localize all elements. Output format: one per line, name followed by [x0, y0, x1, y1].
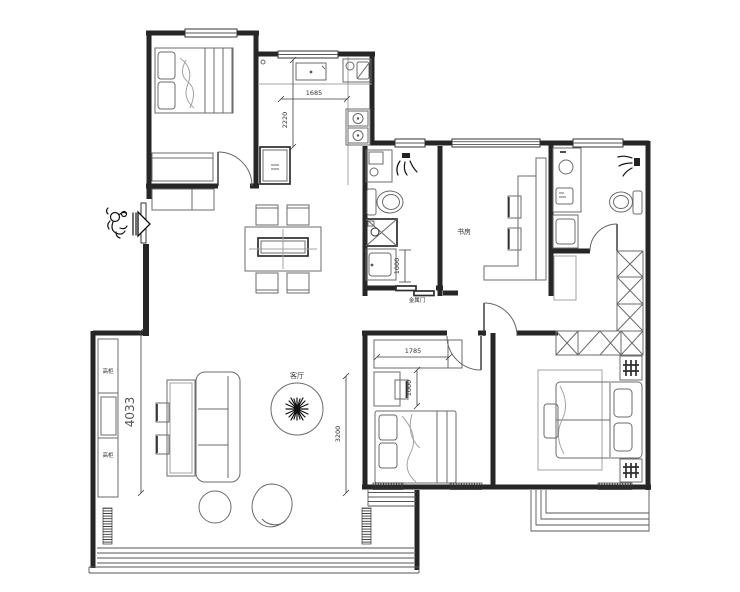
bookshelf-icon — [536, 158, 546, 280]
radiator-icon — [103, 508, 112, 544]
dim-text-kitchen-width: 1685 — [306, 89, 323, 97]
wardrobe-x-hatch — [617, 251, 643, 331]
dim-text-bedroom2-wardrobe: 1785 — [405, 347, 422, 355]
study — [484, 158, 546, 280]
radiators — [103, 483, 632, 544]
room-label-study: 书房 — [457, 227, 471, 236]
room-label-living: 客厅 — [290, 371, 304, 380]
corner-dot — [261, 60, 265, 64]
small-desk-icon — [374, 372, 400, 406]
toilet-icon — [610, 191, 643, 214]
bath1-vanity-icon — [366, 249, 396, 280]
dim-text-living-width: 3200 — [334, 426, 342, 443]
bench-icon — [152, 153, 213, 181]
dim-kitchen-width: 1685 — [278, 89, 350, 102]
bedroom1-door — [218, 152, 252, 186]
dim-text-bedroom2-desk: 1000 — [405, 380, 413, 397]
bedroom2-bay-window — [368, 490, 416, 506]
windows — [185, 29, 623, 147]
study-window — [452, 139, 540, 147]
entry-figure-icon — [107, 208, 128, 238]
entry — [107, 203, 151, 243]
dining-table-icon — [245, 227, 321, 271]
lounge-chair-detail — [262, 519, 286, 525]
bed-icon — [155, 48, 233, 113]
closet-column — [617, 251, 643, 331]
master-door — [484, 303, 517, 336]
sofa-icon — [196, 372, 240, 482]
dining-area — [245, 205, 321, 293]
master-bedroom — [538, 356, 642, 482]
bath1-sliding-door — [396, 286, 434, 296]
dim-text-kitchen-depth: 2220 — [281, 112, 289, 129]
dim-text-living-length: 4033 — [123, 397, 137, 428]
dim-bedroom2-wardrobe: 1785 — [374, 347, 452, 360]
kitchen-window — [278, 51, 338, 58]
fridge-icon — [260, 147, 290, 184]
bath2-vanity-icon — [553, 215, 578, 248]
bath2-basin-icon — [553, 148, 581, 212]
balcony-glass — [97, 548, 414, 563]
master-wardrobe-icon — [556, 331, 643, 355]
tall-cabinet-icon — [98, 339, 118, 497]
ottoman-icon — [199, 491, 231, 523]
hall-cabinet-icon — [554, 256, 576, 300]
counter-edge — [258, 57, 372, 185]
radiator-icon — [450, 483, 482, 490]
dim-bedroom2-desk: 1000 — [405, 367, 420, 409]
radiator-icon — [373, 483, 403, 490]
nightstand-icon — [620, 459, 642, 482]
bedroom-2 — [374, 340, 462, 483]
bath1-basin-icon — [366, 150, 392, 182]
double-bed-icon — [556, 382, 642, 458]
bathroom-1 — [366, 150, 417, 280]
floor-plan-canvas: 1685 2220 1000 4033 3200 1785 1000 书房 客 — [0, 0, 740, 592]
entry-arrow-icon — [133, 212, 150, 236]
living-room — [98, 339, 323, 527]
coffee-table-icon — [167, 380, 195, 476]
dim-living-length: 4033 — [123, 328, 144, 496]
range-hood-icon — [296, 63, 326, 80]
desk-chair-icon — [508, 228, 521, 250]
desk-chair-icon — [508, 196, 521, 218]
kitchen — [258, 57, 372, 185]
bed-icon — [375, 411, 456, 483]
bath1-window — [395, 139, 425, 147]
kitchen-sink-icon — [343, 59, 371, 82]
master-bay-window — [531, 490, 649, 531]
cabinet-label-bottom: 高柜 — [102, 451, 114, 459]
stove-icon — [346, 109, 370, 145]
balcony-parapet — [89, 567, 419, 573]
dim-kitchen-depth: 2220 — [281, 57, 296, 150]
radiator-icon — [362, 508, 371, 544]
bedroom2-door — [447, 336, 481, 370]
shoe-cabinet-icon — [152, 189, 214, 210]
floor-plan-drawing: 1685 2220 1000 4033 3200 1785 1000 书房 客 — [0, 0, 740, 592]
dim-living-width: 3200 — [334, 373, 349, 496]
bedroom1-window — [185, 29, 237, 37]
shower-icon — [397, 153, 417, 175]
dim-text-bath-vanity: 1000 — [393, 258, 401, 275]
washing-machine-icon — [366, 219, 397, 246]
room-labels: 书房 客厅 高柜 高柜 金属门 — [102, 227, 471, 459]
radiator-icon — [598, 483, 632, 490]
toilet-icon — [367, 189, 403, 215]
plant-icon — [271, 383, 323, 435]
bath2-door — [590, 224, 617, 251]
nightstand-icon — [620, 356, 642, 380]
cabinet-label-top: 高柜 — [102, 367, 114, 375]
bath2-window — [573, 139, 623, 147]
metal-door-label: 金属门 — [409, 296, 426, 304]
shower-icon — [618, 156, 640, 176]
